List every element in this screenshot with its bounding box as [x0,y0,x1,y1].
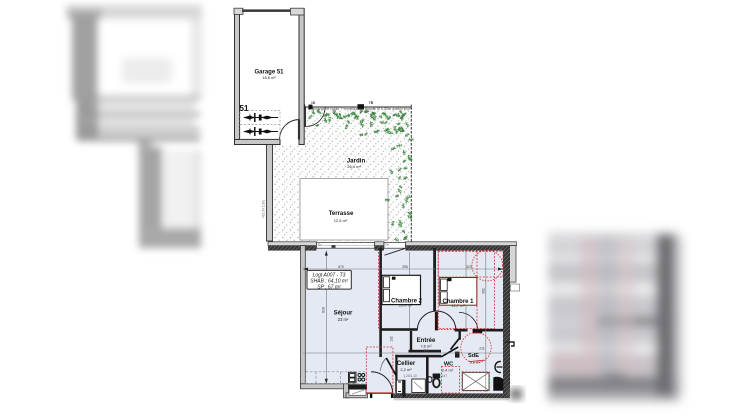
svg-text:211: 211 [479,346,485,350]
svg-text:1,23/1,10: 1,23/1,10 [403,374,417,378]
svg-text:570: 570 [338,265,344,269]
svg-text:10,4 m²: 10,4 m² [399,303,413,308]
svg-text:12,5 m²: 12,5 m² [334,218,348,223]
svg-text:2,4 m²: 2,4 m² [442,367,454,372]
svg-text:2,2 m²: 2,2 m² [400,367,412,372]
svg-text:462 (M 1,80): 462 (M 1,80) [262,200,266,218]
svg-text:295: 295 [402,265,408,269]
svg-text:392: 392 [482,288,486,294]
svg-text:1B: 1B [311,101,316,105]
svg-text:26,4 m²: 26,4 m² [347,164,361,169]
svg-text:Terrasse: Terrasse [329,211,354,217]
svg-text:Dv: Dv [386,243,390,247]
svg-text:SP : 67 m²: SP : 67 m² [317,284,341,290]
svg-text:SdE: SdE [468,353,479,359]
svg-text:309: 309 [423,348,429,352]
svg-text:147: 147 [442,374,448,378]
svg-text:23 m²: 23 m² [338,317,349,322]
svg-text:Séjour: Séjour [334,311,353,317]
svg-text:132: 132 [390,336,394,342]
svg-text:TB: TB [369,101,374,105]
svg-text:323: 323 [466,265,472,269]
svg-text:608: 608 [322,307,326,313]
svg-text:Clôture grille rigide + rempli: Clôture grille rigide + remplissage bran… [308,107,410,111]
svg-text:Dv: Dv [318,243,322,247]
svg-text:18,6 m²: 18,6 m² [262,75,276,80]
svg-text:51: 51 [240,104,249,113]
